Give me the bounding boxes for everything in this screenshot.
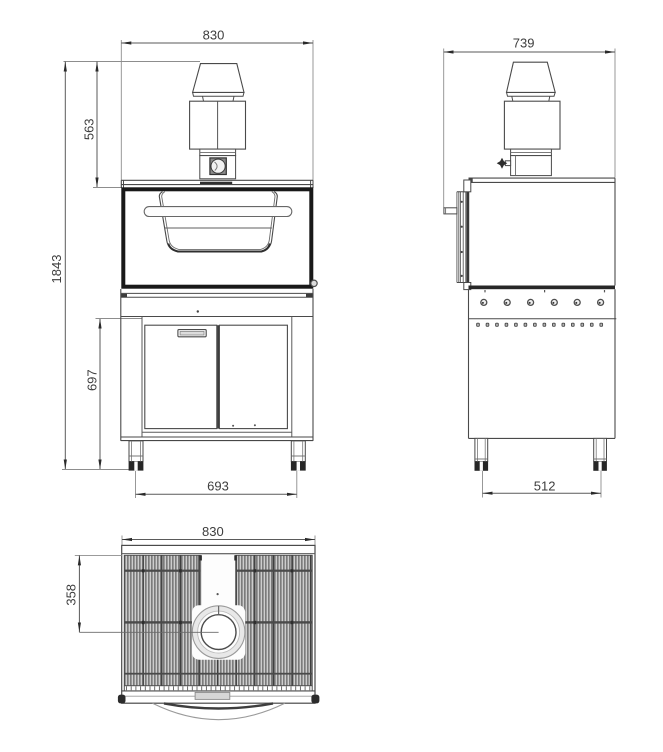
svg-text:1843: 1843 bbox=[49, 255, 64, 284]
svg-text:739: 739 bbox=[513, 36, 535, 51]
svg-text:512: 512 bbox=[534, 478, 556, 493]
svg-text:563: 563 bbox=[82, 118, 97, 140]
svg-text:830: 830 bbox=[202, 524, 224, 539]
svg-text:697: 697 bbox=[85, 369, 100, 391]
svg-text:358: 358 bbox=[63, 584, 78, 606]
svg-text:830: 830 bbox=[203, 28, 225, 43]
svg-text:693: 693 bbox=[207, 478, 229, 493]
